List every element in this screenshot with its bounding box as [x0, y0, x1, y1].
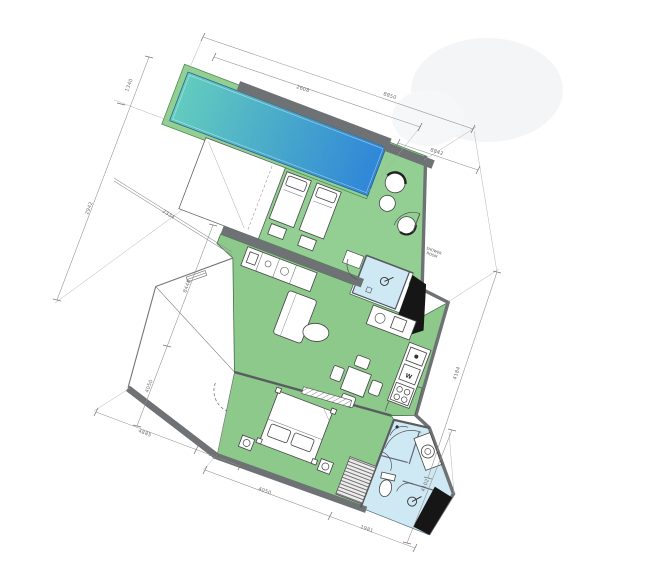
dim-right-mid: 4184 — [452, 366, 462, 381]
dim-left-mid: 8448 — [182, 279, 192, 294]
dim-top-inner: 2608 — [295, 84, 310, 94]
floor-plan-drawing: W — [0, 0, 672, 566]
floor-plan-page: W — [0, 0, 672, 566]
dim-bottom-left: 4885 — [137, 428, 152, 438]
watermark-blob — [392, 38, 563, 146]
dim-left-pool-width: 1340 — [124, 78, 134, 93]
outside-annotation: SHOWER ROOM — [424, 246, 443, 260]
dim-left-upper: 2942 — [84, 201, 94, 216]
dim-left-diagonal: 2334 — [161, 209, 176, 221]
dim-top-outer: 8850 — [382, 91, 397, 101]
dim-bottom-long: 4050 — [257, 486, 272, 496]
dim-bottom-right: 1981 — [359, 524, 374, 534]
